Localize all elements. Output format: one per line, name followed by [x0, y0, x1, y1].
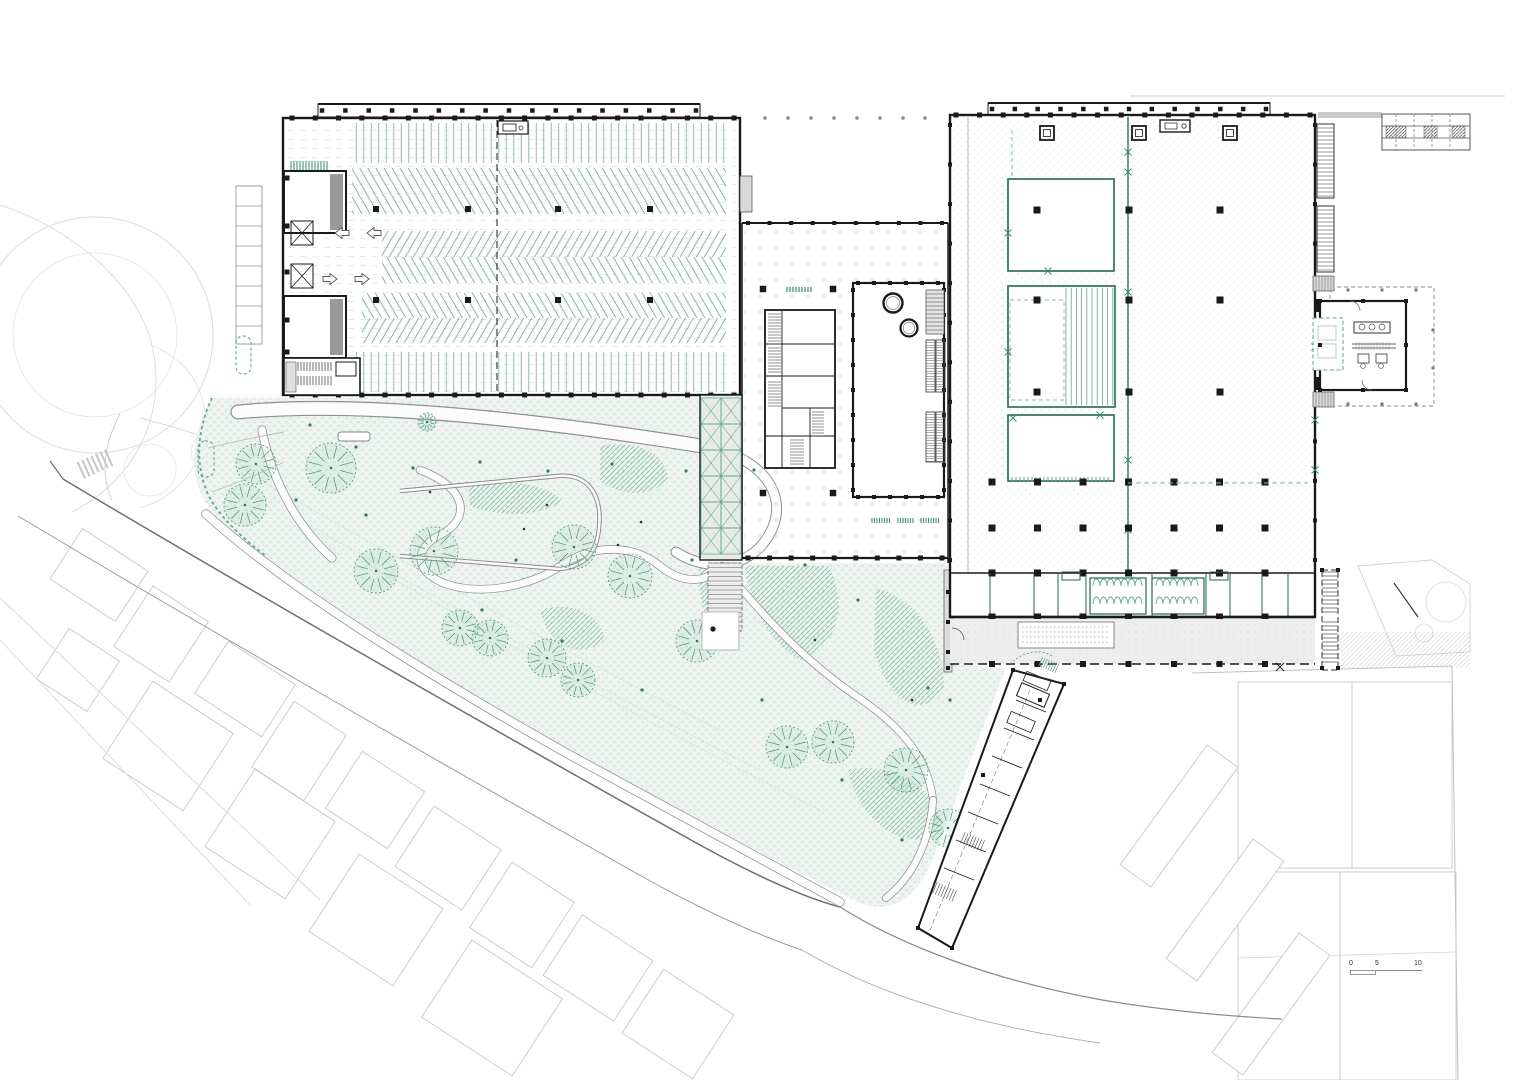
context-surroundings-rect: [1120, 745, 1238, 887]
main-hall-building-rect: [1152, 578, 1204, 614]
context-surroundings-ladder: [78, 450, 113, 479]
parking-garage-building-rect: [362, 318, 726, 343]
main-hall-building-rect: [1452, 126, 1465, 138]
parking-garage-building-rect: [330, 174, 343, 230]
main-hall-building-rect: [1322, 570, 1338, 670]
park-landscape-tree: [884, 748, 928, 792]
park-landscape-tree: [306, 443, 356, 493]
central-connector-rect: [765, 310, 835, 468]
scale-label-5: 5: [1375, 960, 1379, 967]
parking-garage-building-rect: [350, 123, 726, 163]
main-hall-building-rect: [1424, 126, 1437, 138]
scale-bar-segment: [1350, 970, 1376, 975]
main-hall-building-sqrow: [990, 107, 1269, 112]
park-landscape-tree: [410, 527, 458, 575]
context-surroundings-rect: [205, 769, 336, 898]
parking-garage-building-sqrow: [320, 108, 699, 113]
parking-garage-building-rect: [330, 299, 343, 355]
park-landscape-tree: [608, 554, 652, 598]
context-surroundings-circle: [0, 217, 213, 453]
context-surroundings-line: [1238, 952, 1456, 958]
context-surroundings-rect: [1238, 682, 1452, 868]
parking-garage-building-rect: [352, 168, 726, 214]
central-connector-rect: [926, 290, 944, 334]
main-hall-building-rect: [1318, 112, 1382, 118]
main-hall-building-rect: [1160, 120, 1190, 132]
park-landscape-tree: [224, 484, 266, 526]
context-surroundings-rect: [1166, 839, 1284, 981]
main-hall-building: [948, 103, 1470, 671]
site-plan: 0 5 10: [0, 0, 1527, 1080]
context-surroundings-circle: [13, 253, 177, 417]
main-hall-building-rect: [1008, 179, 1114, 271]
central-connector-rect: [702, 612, 739, 650]
context-surroundings-path: [0, 205, 156, 512]
roads-path: [802, 950, 1100, 1043]
park-landscape-tree: [418, 413, 436, 431]
scale-bar: 0 5 10: [1346, 960, 1430, 978]
main-hall-building-rect: [1317, 124, 1334, 198]
context-surroundings-circle: [124, 444, 176, 496]
parking-garage-building-rect: [236, 186, 262, 344]
scale-label-10: 10: [1414, 960, 1422, 967]
central-connector-ladder: [898, 518, 913, 523]
central-connector-dots: [763, 116, 927, 120]
parking-garage-building-rect: [382, 257, 726, 283]
parking-garage-building-rect: [740, 176, 752, 212]
parking-garage-building-rect: [498, 121, 528, 134]
central-connector-ladder: [926, 340, 935, 392]
central-connector-ladder: [936, 340, 945, 392]
scale-label-0: 0: [1349, 960, 1353, 967]
context-surroundings-rect: [325, 751, 424, 848]
main-hall-building-rect: [1090, 578, 1146, 614]
parking-garage-building-rect: [362, 293, 726, 318]
context-surroundings-rect: [543, 915, 653, 1021]
main-hall-building-rect: [953, 118, 1312, 570]
roads-line: [50, 461, 63, 479]
park-landscape-tree: [561, 663, 595, 697]
park-landscape-tree: [552, 525, 596, 569]
main-hall-building-rect: [1018, 622, 1114, 648]
site-plan-svg: [0, 0, 1527, 1080]
park-landscape-tree: [354, 549, 398, 593]
park-landscape-tree: [766, 726, 808, 768]
main-hall-building-rect: [950, 619, 1315, 664]
parking-garage-building-rect: [382, 231, 726, 257]
park-landscape-tree: [528, 639, 566, 677]
parking-garage-building-rect: [286, 362, 296, 392]
park-landscape-tree: [236, 444, 276, 484]
central-connector-ladder: [787, 287, 811, 292]
main-hall-building-rect: [1008, 415, 1114, 481]
context-surroundings-line: [1394, 583, 1418, 617]
main-hall-building-rect: [1008, 286, 1115, 407]
context-surroundings-rect: [50, 529, 148, 622]
central-connector-circle: [710, 626, 715, 631]
context-surroundings-rect: [1334, 632, 1470, 668]
context-surroundings-rect: [422, 940, 563, 1076]
context-surroundings-rect: [622, 969, 734, 1078]
context-surroundings-circle: [1426, 582, 1466, 622]
park-landscape-tree: [472, 620, 508, 656]
park-landscape-tree: [812, 721, 854, 763]
parking-garage-building-rect: [350, 352, 728, 392]
context-surroundings-rect: [1212, 933, 1330, 1075]
park-landscape-rect: [338, 432, 370, 441]
